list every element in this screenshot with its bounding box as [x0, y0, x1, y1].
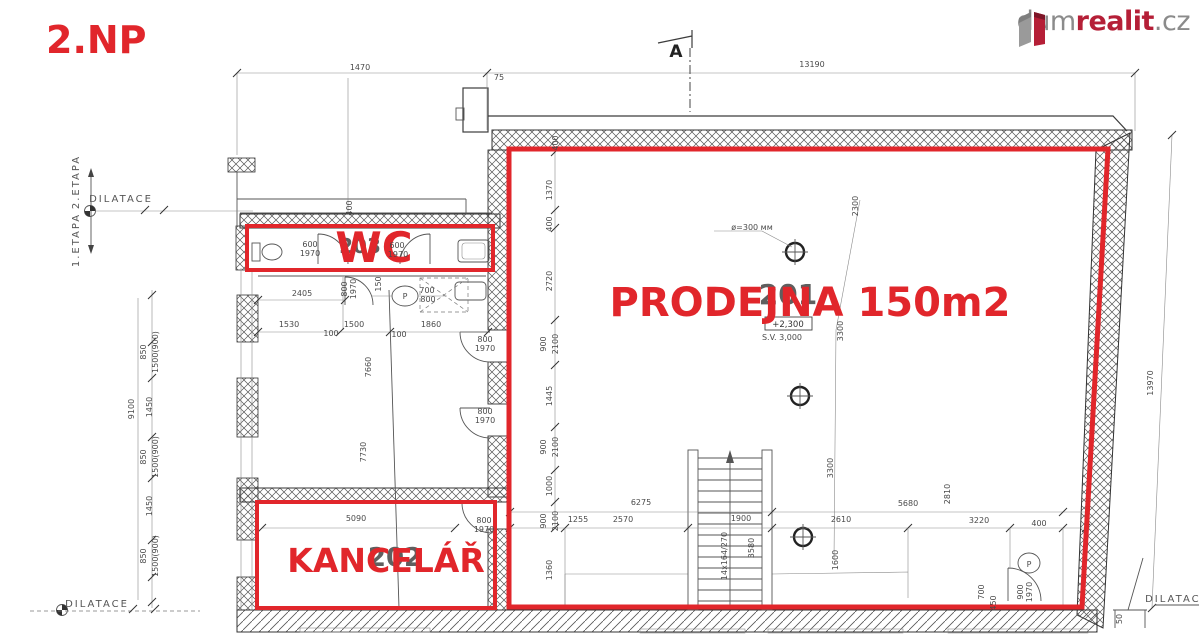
- dimension-label: 1970: [300, 249, 320, 258]
- dimension-label: 2720: [545, 271, 554, 291]
- column-symbol: [787, 383, 813, 409]
- dimension-label: 1970: [474, 525, 494, 534]
- dimension-label: 2610: [831, 515, 851, 524]
- floor-label: 2.NP: [46, 18, 147, 62]
- dimension-label: 850: [139, 344, 148, 359]
- dimension-label: 1360: [545, 560, 554, 580]
- dimension-label: 2100: [551, 511, 560, 531]
- floor-plan-page: 203 201 202 WC PRODEJNA 150m2 KANCELÁŘ A…: [0, 0, 1200, 634]
- dilatace-label-right: DILATACE: [1145, 594, 1200, 605]
- dimension-label: 6275: [631, 498, 651, 507]
- dimension-label: 5090: [346, 514, 366, 523]
- staircase: [688, 450, 772, 610]
- dimension-label: 1970: [475, 344, 495, 353]
- dimension-label: 2300: [851, 196, 860, 216]
- dimension-label: 600: [389, 241, 404, 250]
- dimension-label: 3300: [836, 321, 845, 341]
- dimension-label: 1370: [545, 180, 554, 200]
- dimension-label: 5680: [898, 499, 918, 508]
- dimension-label: 800: [420, 295, 435, 304]
- dimension-label: 1600: [831, 550, 840, 570]
- dimension-label: 2570: [613, 515, 633, 524]
- dimension-label: 2100: [551, 334, 560, 354]
- prodejna-outline: [509, 149, 1108, 607]
- level-value: +2,300: [772, 320, 803, 330]
- dilatace-label-left: DILATACE: [89, 194, 153, 205]
- dimension-label: 1500(900): [151, 535, 160, 577]
- dimension-label: 400: [1031, 519, 1046, 528]
- dimension-label: 400: [551, 135, 560, 150]
- dimension-label: 700: [977, 584, 986, 599]
- dimension-label: 700: [419, 286, 434, 295]
- dimension-label: 1450: [145, 397, 154, 417]
- etapa-lower-label: 1.ETAPA: [71, 213, 82, 267]
- logo-part-realit: realit: [1076, 6, 1154, 37]
- dimension-label: 75: [494, 73, 504, 82]
- dimension-label: 800: [340, 281, 349, 296]
- dimension-label: 13190: [799, 60, 824, 69]
- toilet-icon: [252, 243, 282, 261]
- dimension-label: 2100: [551, 437, 560, 457]
- dimension-label: 50: [1115, 614, 1124, 624]
- dimension-label: 900: [1016, 584, 1025, 599]
- dumrealit-logo-icon: [1017, 6, 1047, 50]
- dimension-label: P: [1027, 560, 1032, 569]
- dimension-label: 1970: [388, 250, 408, 259]
- dimension-label: 1500: [344, 320, 364, 329]
- dimension-label: 1970: [1025, 582, 1034, 602]
- dimension-label: 1970: [475, 416, 495, 425]
- dimension-label: 850: [139, 449, 148, 464]
- dimension-label: 900: [539, 439, 548, 454]
- dimension-label: 150: [374, 276, 383, 291]
- dimension-label: 600: [302, 240, 317, 249]
- dimension-label: 3220: [969, 516, 989, 525]
- dimension-label: 400: [345, 200, 354, 215]
- dimension-label: 100: [391, 330, 406, 339]
- dilatace-markers: [30, 168, 1199, 628]
- dumrealit-logo: dumrealit.cz: [1017, 6, 1190, 37]
- dimension-label: 450: [989, 595, 998, 610]
- dimension-label: 800: [477, 335, 492, 344]
- dimension-label: 1000: [545, 476, 554, 496]
- etapa-upper-label: 2.ETAPA: [71, 155, 82, 209]
- dimension-label: P: [403, 292, 408, 301]
- dimension-label: 2810: [943, 484, 952, 504]
- dimension-label: 7660: [364, 357, 373, 377]
- bathtub-icon: [455, 282, 486, 300]
- dimension-label: 3580: [747, 538, 756, 558]
- dimension-label: 800: [476, 516, 491, 525]
- dimension-label: 1500(900): [151, 436, 160, 478]
- dimension-label: 1255: [568, 515, 588, 524]
- dimension-label: 3300: [826, 458, 835, 478]
- floor-plan-drawing: 203 201 202 WC PRODEJNA 150m2 KANCELÁŘ A…: [0, 0, 1200, 634]
- column-note: ø=300 мм: [731, 223, 772, 232]
- dimension-label: 1445: [545, 386, 554, 406]
- dimension-label: 2405: [292, 289, 312, 298]
- sink-icon: [458, 240, 489, 262]
- dimension-label: 850: [139, 548, 148, 563]
- dimension-label: 800: [477, 407, 492, 416]
- logo-part-cz: .cz: [1154, 6, 1190, 37]
- dimension-label: 7730: [359, 442, 368, 462]
- stairs-direction-arrow: [726, 450, 734, 463]
- dimension-label: 13970: [1146, 370, 1155, 395]
- dimension-label: 1530: [279, 320, 299, 329]
- dimension-label: 900: [539, 336, 548, 351]
- column-symbol: [782, 239, 808, 265]
- dimension-label: 100: [323, 329, 338, 338]
- dimension-label: 1900: [731, 514, 751, 523]
- dimension-label: 1500(900): [151, 331, 160, 373]
- room-label-kancelar: KANCELÁŘ: [287, 540, 484, 580]
- dimension-label: 1470: [350, 63, 370, 72]
- dimension-label: 1450: [145, 496, 154, 516]
- room-label-prodejna: PRODEJNA 150m2: [610, 280, 1011, 326]
- dimension-label: 1970: [349, 279, 358, 299]
- dilatace-label-bottom: DILATACE: [65, 599, 129, 610]
- dimension-label: 14x164/270: [720, 532, 729, 580]
- dimension-label: 9100: [127, 399, 136, 419]
- dimension-label: 400: [545, 216, 554, 231]
- dimension-label: 1860: [421, 320, 441, 329]
- section-letter: A: [669, 42, 683, 62]
- dimension-label: 900: [539, 513, 548, 528]
- dimension-label: S.V. 3,000: [762, 333, 802, 342]
